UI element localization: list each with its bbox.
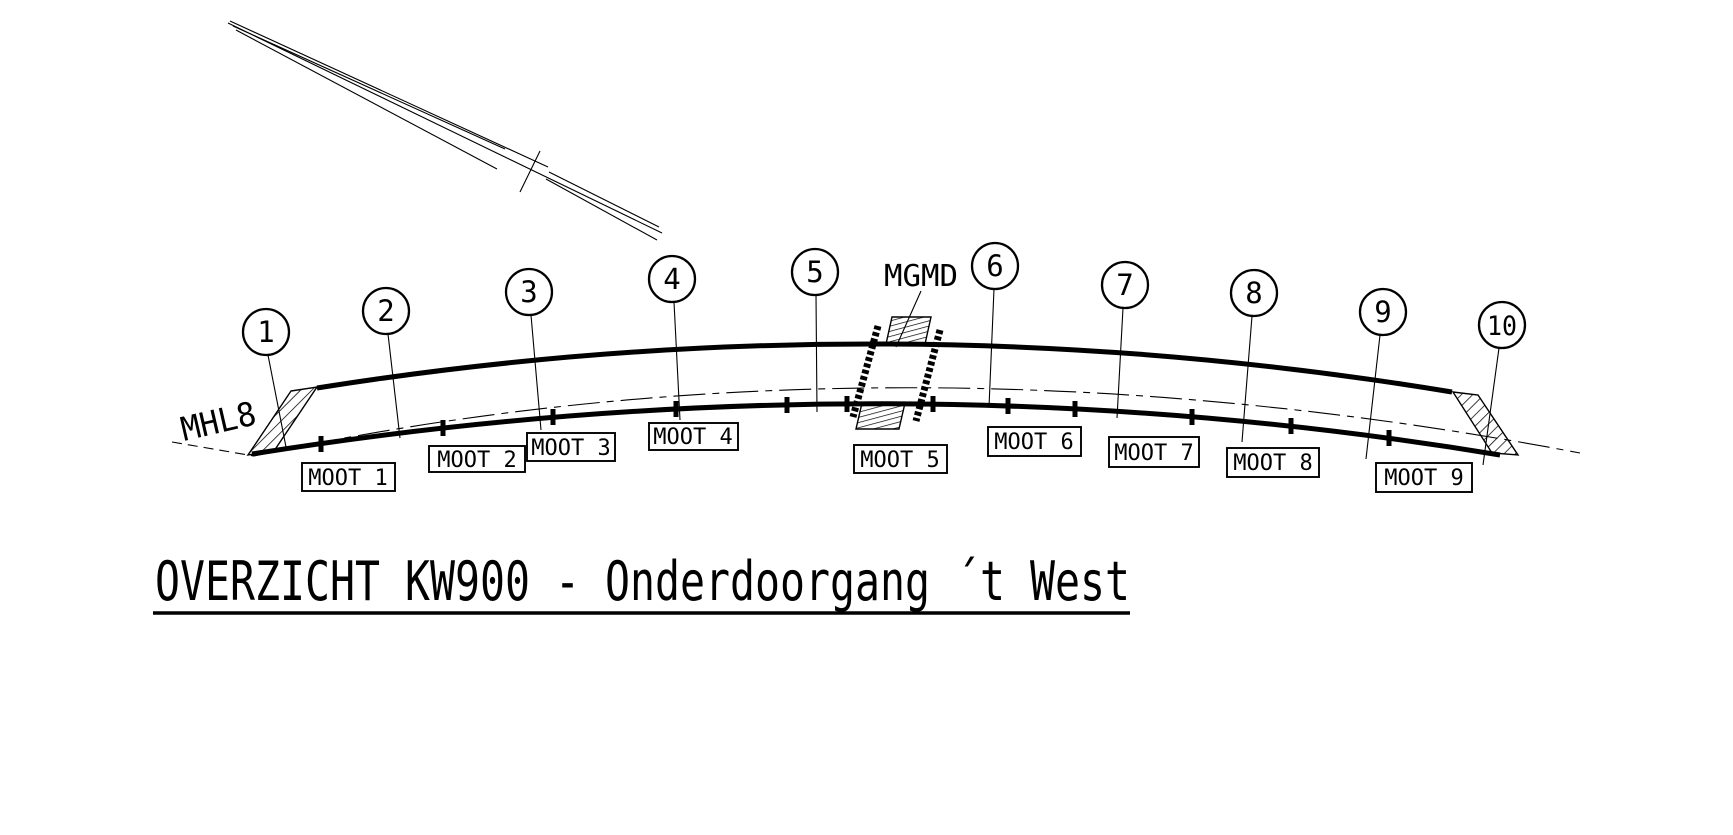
axis-marker-6: 6	[972, 243, 1018, 289]
axis-leader-lines	[268, 289, 1499, 465]
axis-marker-2: 2	[363, 288, 409, 334]
moot-label-8: MOOT 8	[1227, 448, 1319, 477]
axis-leader	[388, 334, 400, 438]
axis-marker-4: 4	[649, 256, 695, 302]
moot-text: MOOT 9	[1384, 466, 1463, 491]
mhl8-label: MHL8	[177, 394, 260, 449]
axis-marker-8: 8	[1231, 270, 1277, 316]
technical-drawing: MGMD MHL8 1 2 3 4 5 6 7	[0, 0, 1733, 835]
axis-number: 2	[377, 294, 394, 328]
moot-label-4: MOOT 4	[649, 423, 738, 450]
alignment-line	[549, 172, 659, 227]
axis-number: 6	[986, 249, 1003, 283]
axis-marker-9: 9	[1360, 289, 1406, 335]
moot-text: MOOT 6	[994, 430, 1073, 455]
alignment-lines-cluster	[228, 21, 662, 240]
axis-number: 1	[257, 315, 274, 349]
title-block: OVERZICHT KW900 - Onderdoorgang ´t West	[153, 550, 1130, 613]
moot-label-5: MOOT 5	[854, 445, 947, 473]
axis-number: 8	[1245, 276, 1262, 310]
axis-marker-1: 1	[243, 309, 289, 355]
moot-label-2: MOOT 2	[429, 446, 525, 473]
mgmd-joint	[853, 291, 940, 429]
axis-number: 4	[663, 262, 680, 296]
deck-top-edge	[317, 344, 1452, 392]
alignment-line	[546, 179, 657, 240]
alignment-line	[228, 23, 662, 233]
segment-labels: MOOT 1 MOOT 2 MOOT 3 MOOT 4 MOOT 5 MOOT …	[302, 423, 1472, 492]
axis-marker-3: 3	[506, 269, 552, 315]
axis-number: 3	[520, 275, 537, 309]
axis-marker-7: 7	[1102, 262, 1148, 308]
axis-leader	[1366, 335, 1380, 459]
moot-label-6: MOOT 6	[988, 427, 1081, 456]
alignment-line	[236, 30, 497, 169]
moot-text: MOOT 8	[1233, 451, 1312, 476]
drawing-title: OVERZICHT KW900 - Onderdoorgang ´t West	[155, 550, 1130, 613]
moot-text: MOOT 1	[308, 466, 387, 491]
moot-text: MOOT 5	[860, 448, 939, 473]
moot-text: MOOT 2	[437, 448, 516, 473]
moot-text: MOOT 7	[1114, 441, 1193, 466]
axis-number: 5	[806, 255, 823, 289]
mgmd-top-block	[886, 317, 931, 344]
mgmd-label: MGMD	[884, 259, 958, 294]
axis-leader	[816, 295, 817, 412]
axis-marker-10: 10	[1479, 302, 1525, 348]
moot-label-3: MOOT 3	[527, 433, 615, 461]
alignment-line	[230, 21, 548, 167]
moot-label-9: MOOT 9	[1376, 463, 1472, 492]
moot-text: MOOT 3	[531, 436, 610, 461]
axis-number: 7	[1116, 268, 1133, 302]
mgmd-bottom-block	[856, 403, 905, 429]
axis-marker-5: 5	[792, 249, 838, 295]
axis-number: 10	[1487, 311, 1517, 342]
moot-label-1: MOOT 1	[302, 463, 395, 491]
axis-leader	[1117, 308, 1123, 418]
alignment-line	[233, 26, 505, 149]
moot-text: MOOT 4	[653, 425, 732, 450]
moot-label-7: MOOT 7	[1109, 437, 1199, 467]
axis-number: 9	[1374, 295, 1391, 329]
axis-leader	[531, 315, 541, 430]
alignment-tick	[520, 151, 540, 192]
